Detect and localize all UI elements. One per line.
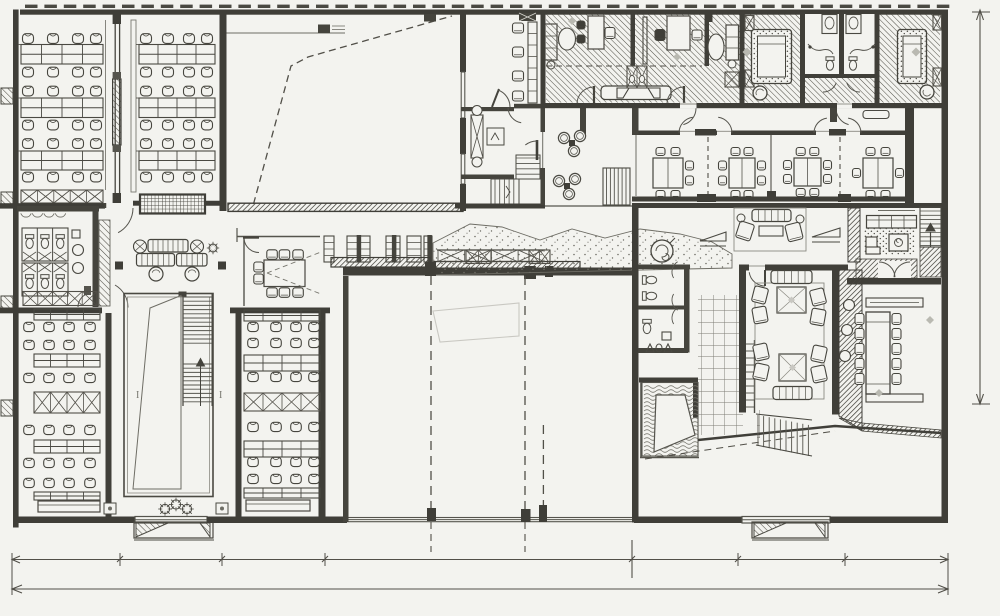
svg-text:I: I [136,390,139,401]
svg-text:I: I [219,390,222,401]
